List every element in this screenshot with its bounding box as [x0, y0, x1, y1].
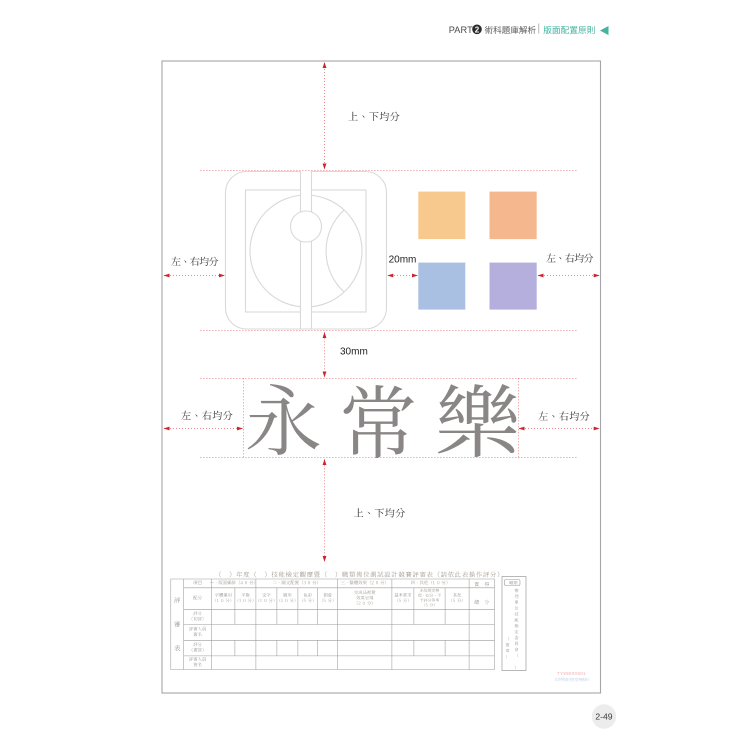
- svg-text:2: 2: [475, 26, 480, 35]
- svg-text:20mm: 20mm: [389, 255, 417, 266]
- svg-text:TY89000901: TY89000901: [557, 671, 586, 676]
- svg-text:PART: PART: [449, 25, 473, 35]
- svg-text:2-49: 2-49: [595, 712, 612, 722]
- svg-text:30mm: 30mm: [340, 347, 368, 358]
